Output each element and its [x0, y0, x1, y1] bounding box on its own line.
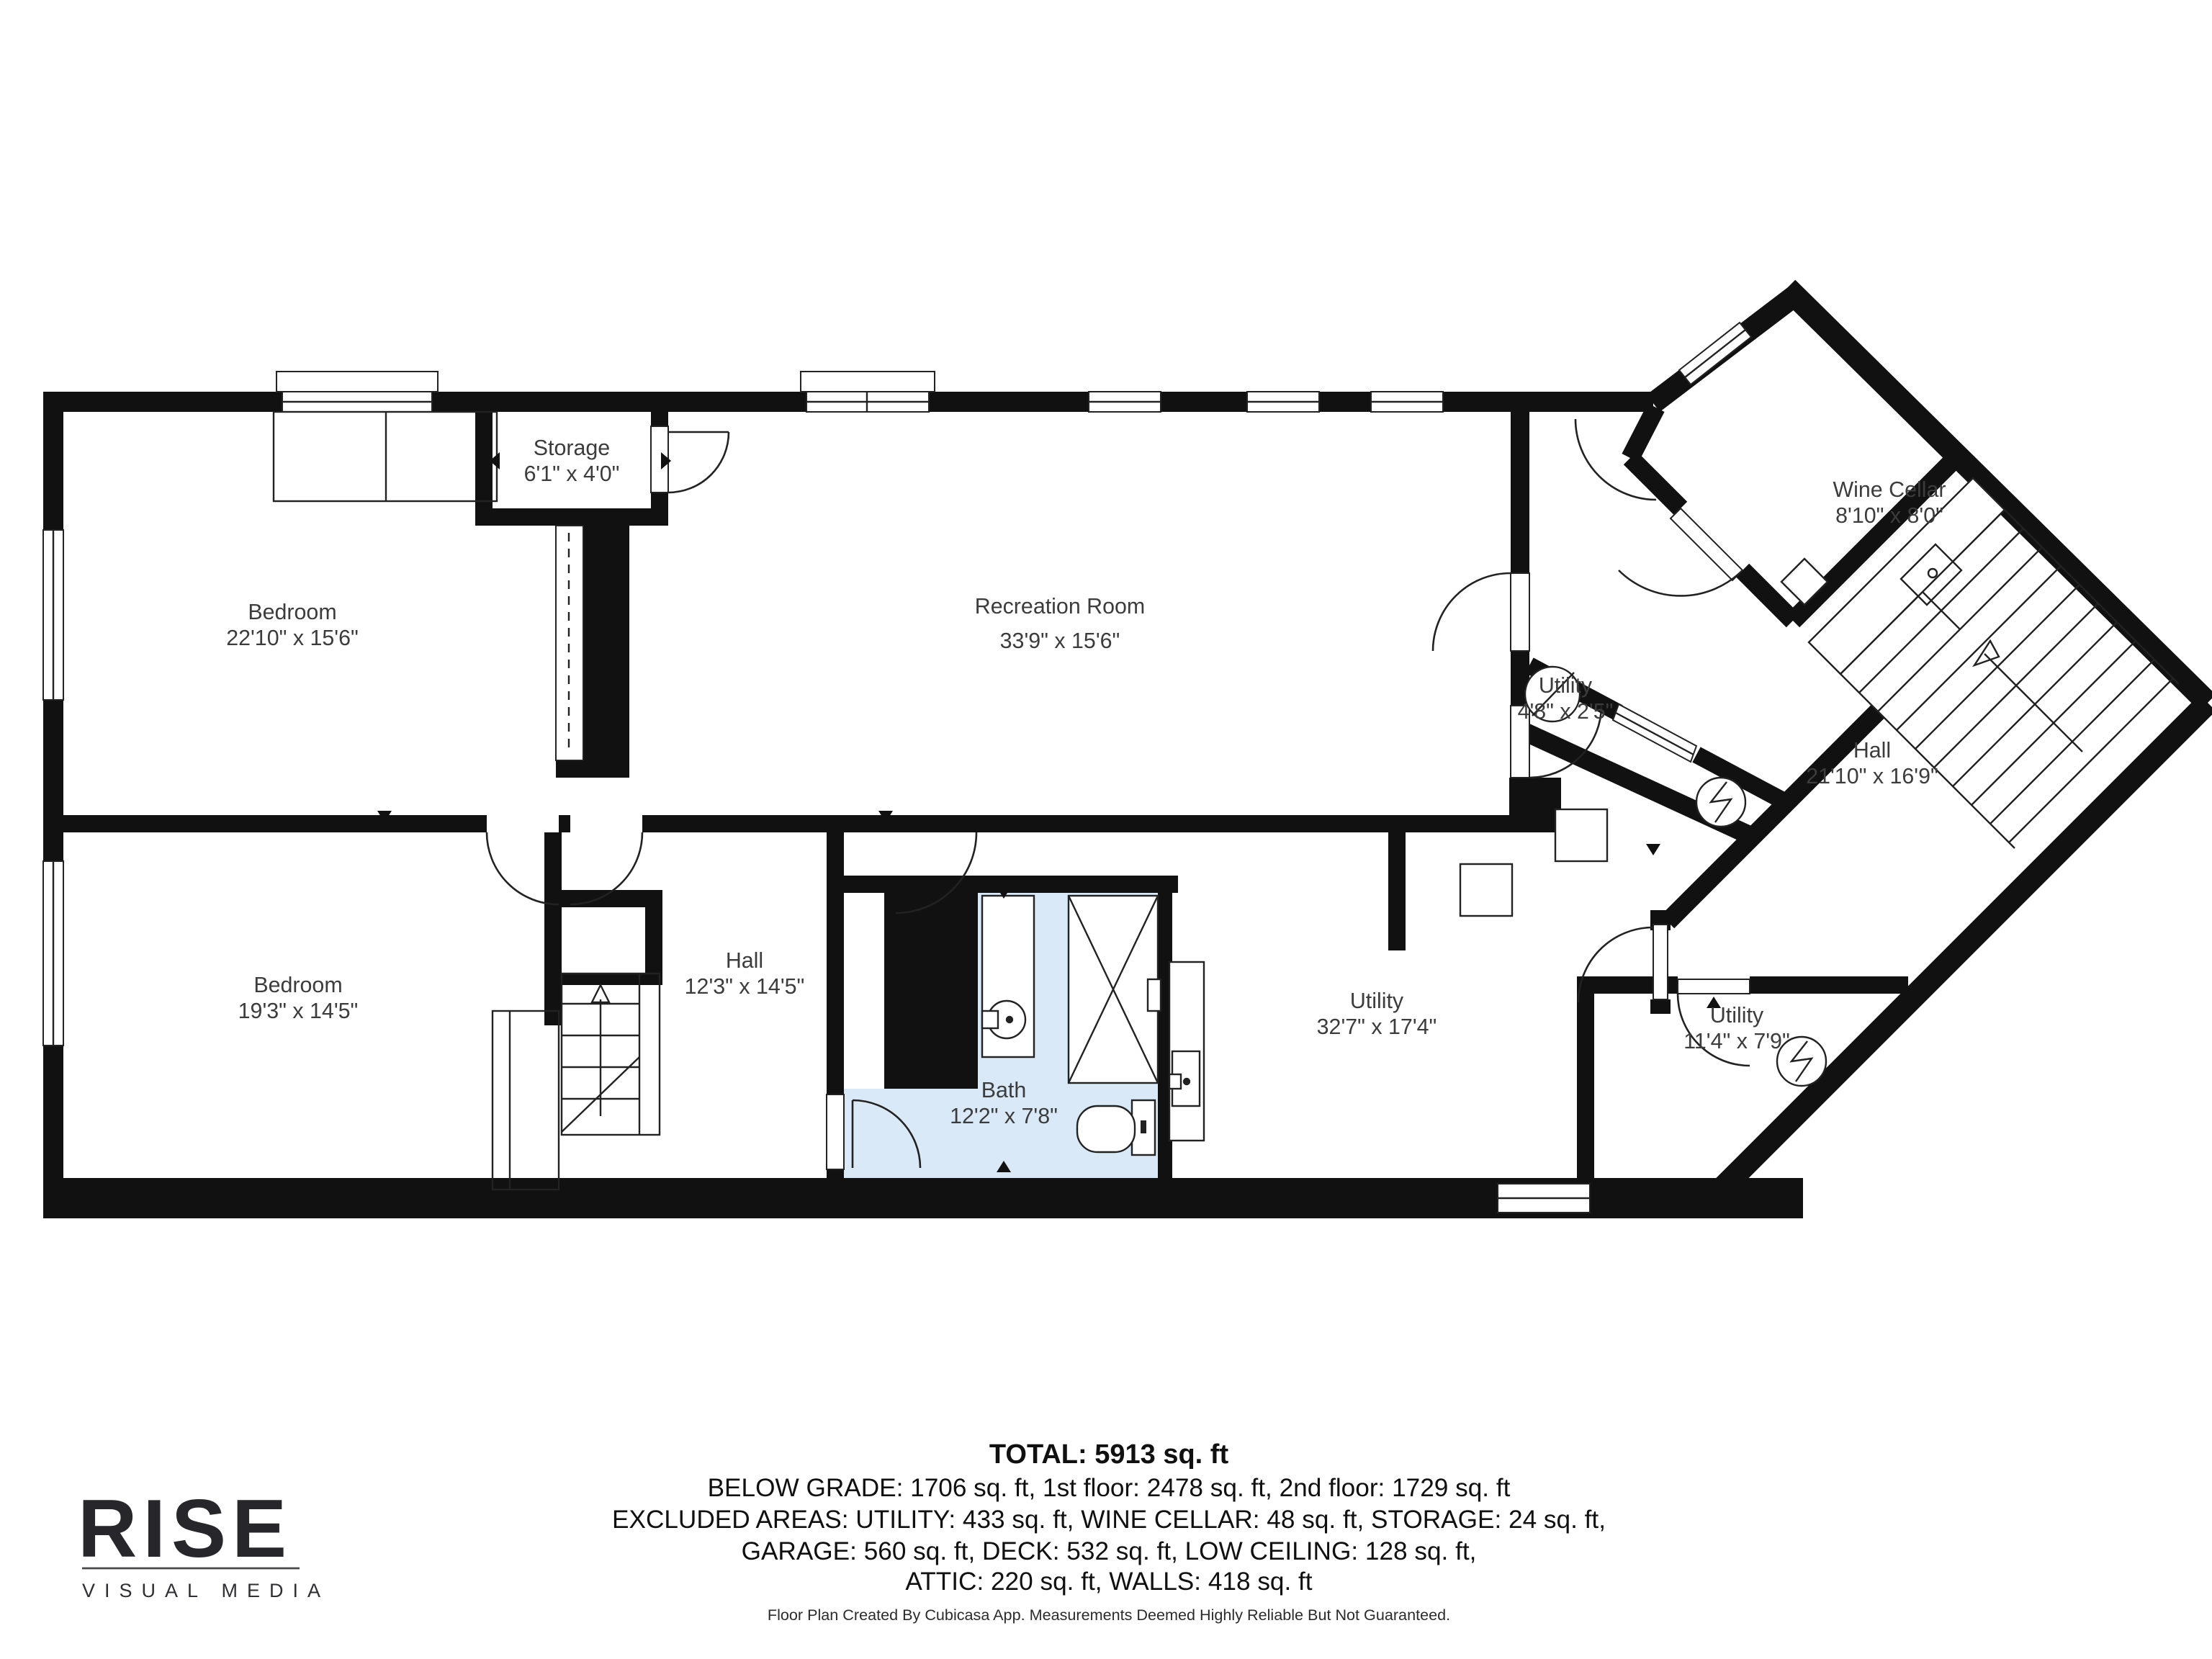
room-dims-recreation: 33'9" x 15'6" — [1000, 629, 1120, 653]
summary-line-1: BELOW GRADE: 1706 sq. ft, 1st floor: 247… — [708, 1474, 1511, 1502]
room-label-wine-cellar: Wine Cellar — [1833, 477, 1946, 502]
room-label-bedroom-2: Bedroom — [253, 973, 342, 997]
room-dims-utility-small: 4'8" x 2'5" — [1518, 699, 1614, 724]
bedroom2-closet — [493, 1011, 559, 1190]
room-dims-utility-right: 11'4" x 7'9" — [1683, 1029, 1790, 1053]
electrical-panel-icon — [1696, 778, 1745, 827]
logo-brand-text: RISE — [78, 1483, 292, 1575]
floor-plan-page: Bedroom 22'10" x 15'6" Storage 6'1" x 4'… — [0, 0, 2212, 1659]
room-label-bedroom-1: Bedroom — [248, 600, 336, 624]
summary-total: TOTAL: 5913 sq. ft — [989, 1439, 1229, 1470]
floor-plan-canvas: Bedroom 22'10" x 15'6" Storage 6'1" x 4'… — [0, 0, 2212, 1659]
room-label-bath: Bath — [981, 1078, 1027, 1102]
room-dims-storage: 6'1" x 4'0" — [524, 462, 620, 486]
staircase-icon — [562, 974, 660, 1135]
rise-visual-media-logo: RISE VISUAL MEDIA — [78, 1483, 330, 1601]
room-dims-bath: 12'2" x 7'8" — [950, 1104, 1058, 1128]
summary-line-4: ATTIC: 220 sq. ft, WALLS: 418 sq. ft — [905, 1568, 1312, 1596]
utility-counter-sink-icon — [1169, 962, 1204, 1141]
room-dims-bedroom-1: 22'10" x 15'6" — [226, 626, 359, 650]
room-label-utility-main: Utility — [1350, 989, 1404, 1013]
bathroom-vanity-sink-icon — [982, 896, 1034, 1057]
room-dims-hall-lower: 12'3" x 14'5" — [685, 974, 805, 999]
footer-disclaimer: Floor Plan Created By Cubicasa App. Meas… — [768, 1606, 1450, 1624]
logo-tagline-text: VISUAL MEDIA — [82, 1580, 330, 1601]
area-summary: TOTAL: 5913 sq. ft BELOW GRADE: 1706 sq.… — [612, 1439, 1606, 1624]
room-dims-bedroom-2: 19'3" x 14'5" — [238, 999, 359, 1023]
room-label-hall-upper: Hall — [1853, 738, 1891, 763]
toilet-icon — [1077, 1100, 1155, 1155]
room-label-utility-right: Utility — [1710, 1003, 1764, 1028]
room-dims-wine-cellar: 8'10" x 8'0" — [1835, 503, 1943, 528]
room-label-utility-small: Utility — [1539, 673, 1593, 698]
room-label-storage: Storage — [534, 436, 610, 460]
room-dims-utility-main: 32'7" x 17'4" — [1317, 1015, 1437, 1039]
summary-line-3: GARAGE: 560 sq. ft, DECK: 532 sq. ft, LO… — [742, 1537, 1477, 1565]
summary-line-2: EXCLUDED AREAS: UTILITY: 433 sq. ft, WIN… — [612, 1506, 1606, 1534]
room-label-recreation: Recreation Room — [975, 594, 1145, 619]
room-dims-hall-upper: 21'10" x 16'9" — [1806, 764, 1938, 788]
room-label-hall-lower: Hall — [726, 948, 763, 973]
shower-icon — [1069, 896, 1161, 1083]
